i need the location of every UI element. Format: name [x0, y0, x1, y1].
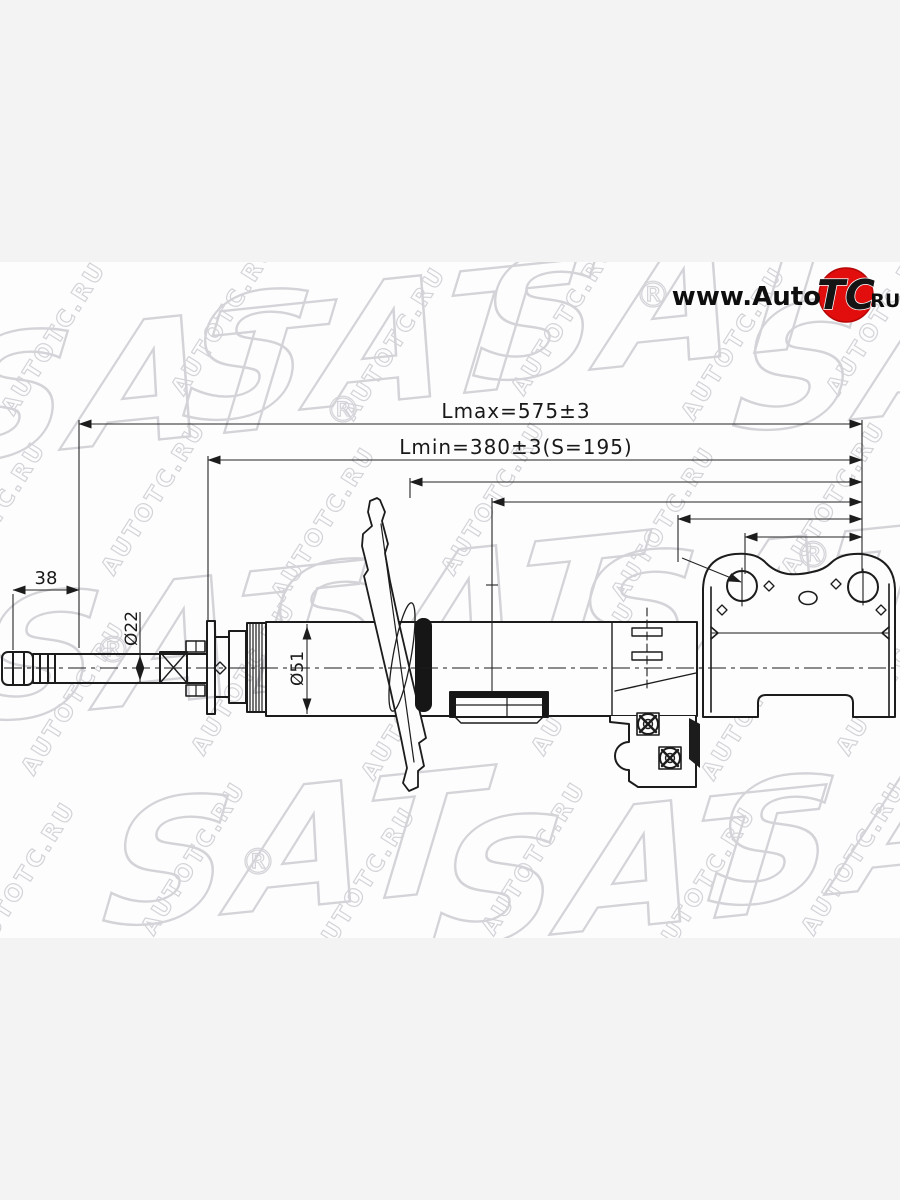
bracket-bolt-boss-upper [637, 713, 659, 735]
lmin-label: Lmin=380±3(S=195) [399, 435, 633, 459]
tube-clamp-block [450, 692, 548, 723]
watermark-item [240, 842, 276, 883]
logo-suffix: .RU [863, 290, 900, 312]
bracket-bolt-boss-lower [659, 747, 681, 769]
boot-clamp-band [415, 618, 432, 712]
technical-drawing: AUTOTC.RU SAT ® [0, 262, 900, 938]
product-photo-area: AUTOTC.RU SAT ® [0, 262, 900, 938]
thread-length-label: 38 [35, 568, 58, 589]
watermark-item [635, 275, 671, 316]
page: { "page": { "background": "#f3f3f4", "ph… [0, 0, 900, 1200]
watermark-item [325, 390, 361, 431]
rod-diameter-label: Ø22 [122, 611, 142, 646]
logo-prefix: www.Auto [672, 282, 821, 312]
lmax-label: Lmax=575±3 [441, 399, 590, 423]
watermark-item [0, 797, 82, 938]
